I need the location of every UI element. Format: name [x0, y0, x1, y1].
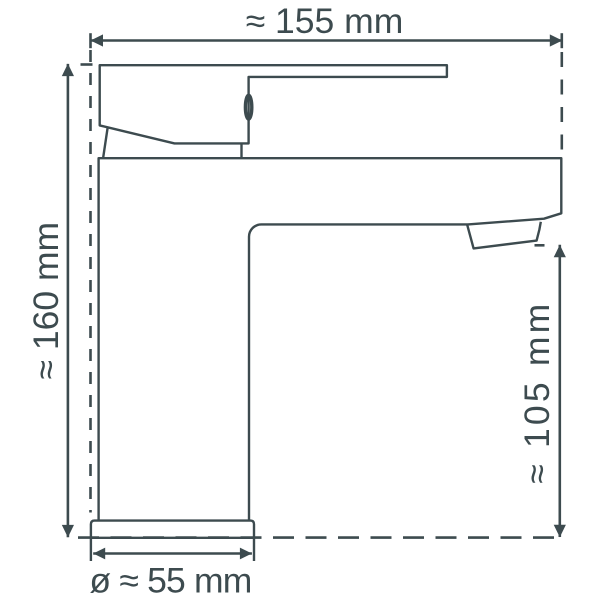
svg-text:≈ 105 mm: ≈ 105 mm [517, 301, 557, 484]
svg-text:ø ≈ 55 mm: ø ≈ 55 mm [89, 561, 251, 600]
svg-text:≈ 155 mm: ≈ 155 mm [246, 1, 404, 41]
svg-text:≈ 160 mm: ≈ 160 mm [26, 222, 66, 380]
